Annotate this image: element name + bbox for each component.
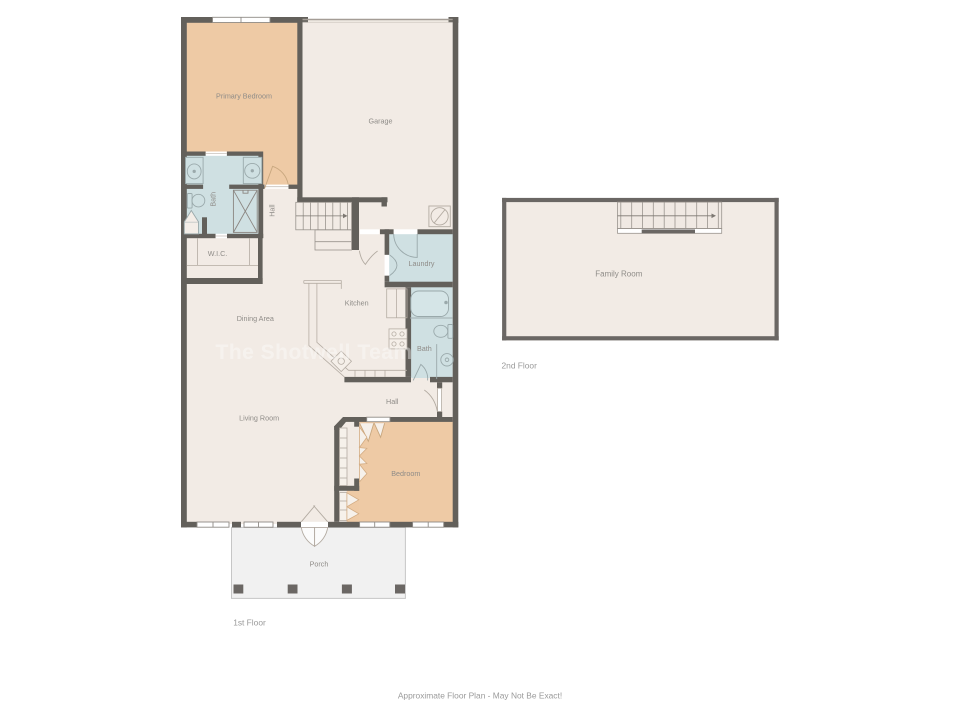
svg-text:The Shotwell Team: The Shotwell Team [216,341,413,364]
svg-text:Kitchen: Kitchen [345,299,369,308]
svg-text:1st Floor: 1st Floor [233,618,266,628]
svg-text:Living Room: Living Room [239,413,279,422]
svg-text:Bath: Bath [209,192,218,207]
svg-text:W.I.C.: W.I.C. [208,249,228,258]
svg-text:Primary Bedroom: Primary Bedroom [216,92,272,101]
svg-text:Hall: Hall [386,397,399,406]
svg-text:Porch: Porch [310,560,329,569]
svg-text:Garage: Garage [369,116,393,125]
svg-text:Dining Area: Dining Area [237,314,274,323]
svg-text:Hall: Hall [268,204,277,217]
svg-text:2nd Floor: 2nd Floor [502,361,538,371]
svg-text:Laundry: Laundry [409,259,435,268]
svg-text:Bath: Bath [417,344,432,353]
svg-text:Family Room: Family Room [595,270,642,279]
svg-text:Approximate Floor Plan - May N: Approximate Floor Plan - May Not Be Exac… [398,691,562,701]
svg-text:Bedroom: Bedroom [391,469,420,478]
